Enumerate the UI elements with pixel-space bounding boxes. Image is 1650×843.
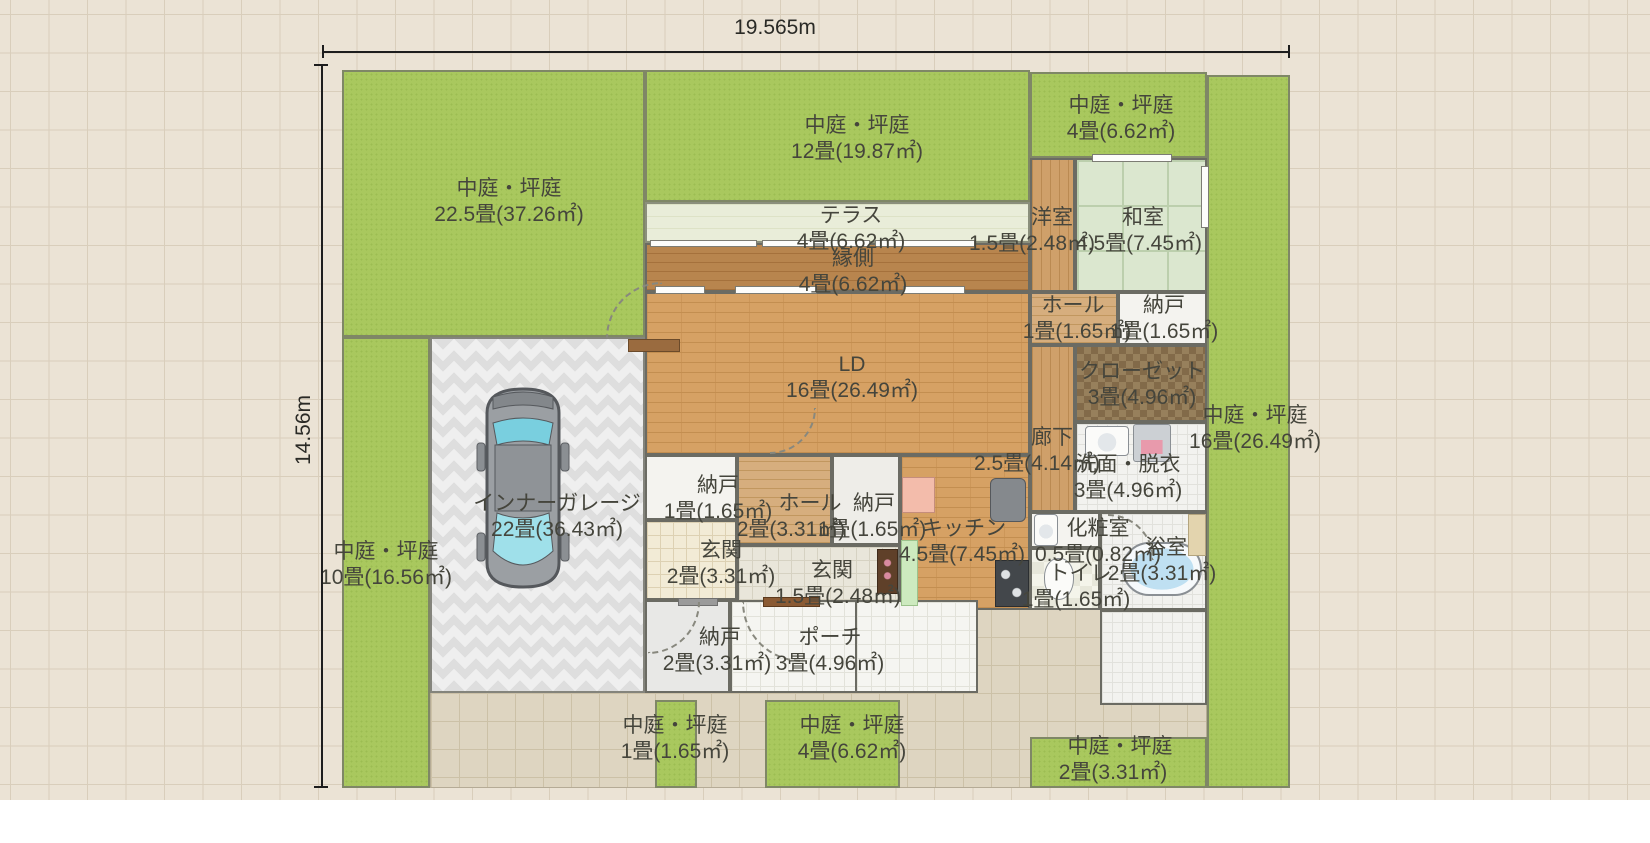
lot-width-label: 19.565m [734,16,816,40]
label-porch: ポーチ3畳(4.96㎡) [776,625,885,677]
window[interactable] [903,286,965,294]
label-kitchen: キッチン4.5畳(7.45㎡) [901,516,1027,568]
dimension-line-left [321,64,323,788]
bath-apron[interactable] [1100,610,1207,705]
window[interactable] [650,240,757,247]
bottom-margin [0,800,1650,843]
dimension-tick [314,64,328,66]
label-garden-east: 中庭・坪庭16畳(26.49㎡) [1189,403,1321,455]
window[interactable] [655,286,705,294]
garage-step-shelf[interactable] [628,339,680,352]
label-senmen: 洗面・脱衣3畳(4.96㎡) [1074,452,1183,504]
label-washitsu: 和室4.5畳(7.45㎡) [1080,205,1206,257]
label-engawa: 縁側4畳(6.62㎡) [799,246,908,298]
label-garden-northwest: 中庭・坪庭22.5畳(37.26㎡) [434,176,583,228]
label-garden-northeast: 中庭・坪庭4畳(6.62㎡) [1067,93,1176,145]
label-garden-north: 中庭・坪庭12畳(19.87㎡) [791,113,923,165]
label-garden-west: 中庭・坪庭10畳(16.56㎡) [320,539,452,591]
car[interactable] [473,383,573,593]
label-garden-south-small: 中庭・坪庭1畳(1.65㎡) [621,713,730,765]
label-garage: インナーガレージ22畳(36.43㎡) [473,491,641,543]
lot-height-label: 14.56m [292,395,316,465]
label-garden-south: 中庭・坪庭4畳(6.62㎡) [798,713,907,765]
floorplan-canvas: 19.565m 14.56m 中庭・坪庭22.5畳(37.26㎡)中庭・坪庭12… [0,0,1650,843]
label-ld: LD16畳(26.49㎡) [786,352,918,404]
label-genkan-west: 玄関2畳(3.31㎡) [667,538,776,590]
window[interactable] [1092,154,1172,162]
dimension-line-top [322,51,1290,53]
label-closet: クローゼット3畳(4.96㎡) [1079,359,1205,411]
label-toilet: トイレ1畳(1.65㎡) [1026,561,1135,613]
label-nando-upper-right: 納戸1畳(1.65㎡) [1110,293,1219,345]
label-garden-southeast: 中庭・坪庭2畳(3.31㎡) [1066,734,1175,786]
label-nando-south: 納戸2畳(3.31㎡) [666,625,775,677]
dimension-tick [1288,45,1290,58]
dimension-tick [314,786,328,788]
dimension-tick [322,45,324,58]
label-genkan-center: 玄関1.5畳(2.48㎡) [769,558,895,610]
